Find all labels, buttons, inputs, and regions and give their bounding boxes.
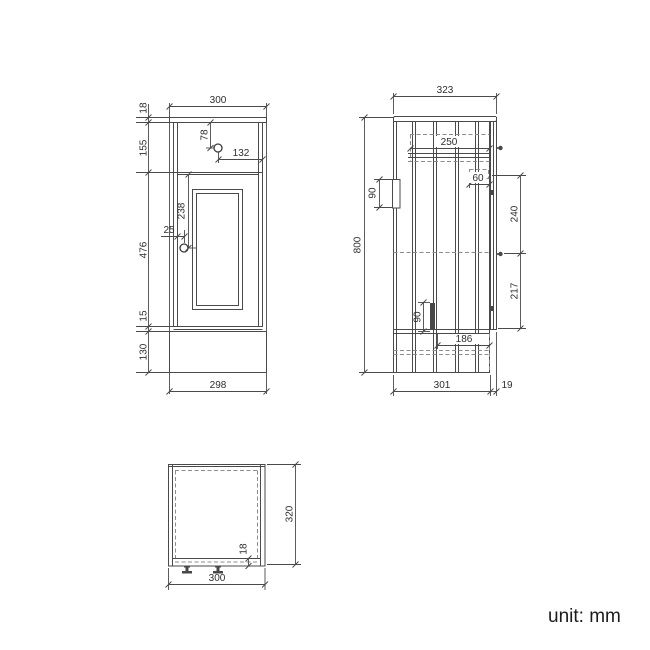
dim-front-counter-thickness: 18 [139,102,150,114]
drawing-canvas: 300 18 155 476 15 130 78 132 238 25 298 [0,0,650,650]
dim-side-hanger-height: 90 [368,187,379,199]
dim-front-doorknob-top: 238 [177,202,188,219]
side-hanger-bracket [393,180,401,209]
plan-view [169,465,266,567]
dim-front-knob-top: 78 [200,129,211,141]
foot-top [184,566,190,568]
foot-base [182,571,192,574]
front-countertop [170,118,267,123]
dim-side-foot-bracket: 90 [413,311,424,323]
front-door-knob [180,244,188,252]
dim-side-top-depth: 323 [437,85,454,96]
door-hinge-mark [490,306,493,311]
front-drawer-knob [214,144,222,152]
side-door-knob [498,252,502,256]
side-countertop [394,117,497,122]
unit-label: unit: mm [548,606,621,628]
dim-plan-width: 300 [209,573,226,584]
side-foot-bracket [430,303,435,330]
dim-side-door-thickness: 19 [501,380,513,391]
dim-front-top-width: 300 [210,95,227,106]
dimension-drawing: 300 18 155 476 15 130 78 132 238 25 298 [0,0,650,650]
dim-plan-depth: 320 [285,505,296,522]
dim-side-upper-clearance: 240 [510,205,521,222]
dim-front-base-width: 298 [210,380,227,391]
dim-side-lower-clearance: 217 [510,282,521,299]
dim-side-height: 800 [353,236,364,253]
plan-outer-rect [169,465,266,567]
side-view [394,117,497,373]
side-drawer-knob [498,146,502,150]
dim-side-drawer-depth: 250 [441,137,458,148]
dim-side-runner-bracket: 60 [472,173,484,184]
dim-side-runner-length: 186 [456,334,473,345]
door-hinge-mark [490,190,493,195]
dim-front-plinth-height: 130 [139,343,150,360]
dim-front-knob-right: 132 [233,148,250,159]
front-plinth [170,332,267,373]
dim-front-door-height: 476 [139,241,150,258]
dim-front-upper-height: 155 [139,139,150,156]
dim-side-body-depth: 301 [434,380,451,391]
dim-front-gap: 15 [139,310,150,322]
dim-front-doorknob-inset: 25 [163,225,175,236]
dim-plan-panel-thickness: 18 [239,543,250,555]
foot-top [215,566,221,568]
